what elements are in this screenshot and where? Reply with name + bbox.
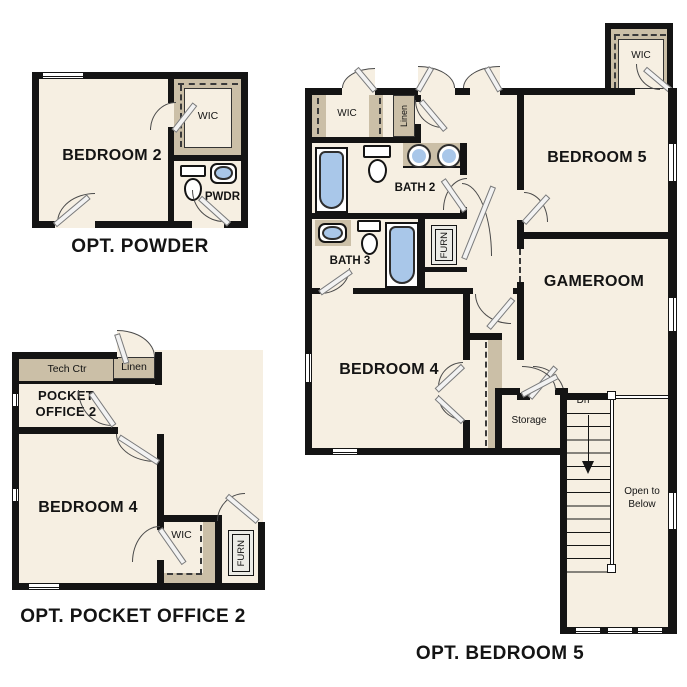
wall xyxy=(463,294,470,360)
wall xyxy=(517,282,524,360)
floorplan-canvas: WIC PWDR BEDROOM 2 OPT. POWDER Tech Ctr … xyxy=(0,0,687,687)
wall xyxy=(157,560,164,590)
bathtub-icon xyxy=(319,151,344,209)
bedroom2-label: BEDROOM 2 xyxy=(47,146,177,166)
wall xyxy=(157,434,164,515)
wall xyxy=(668,88,677,143)
newel-post xyxy=(607,391,616,400)
window xyxy=(42,72,84,79)
wall xyxy=(305,448,332,455)
wall-thin xyxy=(19,381,115,384)
window xyxy=(305,353,312,383)
newel-post xyxy=(607,564,616,573)
window xyxy=(607,627,633,634)
gameroom-label: GAMEROOM xyxy=(525,272,663,292)
wall xyxy=(12,352,19,590)
dashed-opening xyxy=(519,249,521,282)
wall xyxy=(157,515,222,522)
wall xyxy=(305,383,312,455)
plan-opt-powder: WIC PWDR BEDROOM 2 xyxy=(32,72,248,228)
wall xyxy=(353,288,473,294)
sink-bowl-icon xyxy=(409,146,429,166)
wall xyxy=(560,388,567,627)
wall xyxy=(418,219,425,288)
wall xyxy=(215,515,222,590)
railing xyxy=(610,400,614,568)
bathtub-icon xyxy=(389,226,415,284)
linen-label: Linen xyxy=(399,105,409,127)
furn-label: FURN xyxy=(236,540,247,566)
closet-rod-dashed-line xyxy=(614,34,616,88)
bedroom4-label: BEDROOM 4 xyxy=(24,498,152,518)
toilet-icon xyxy=(363,145,391,158)
furn-label: FURN xyxy=(439,232,450,258)
closet-rod-dashed-line xyxy=(485,342,487,446)
wall xyxy=(375,88,418,95)
wall xyxy=(113,379,162,384)
caption-opt-pocket-office-2: OPT. POCKET OFFICE 2 xyxy=(13,606,253,628)
window xyxy=(668,297,677,332)
wall xyxy=(495,388,520,395)
wall xyxy=(668,182,677,297)
window xyxy=(637,627,663,634)
wall xyxy=(415,124,421,137)
sink-bowl-icon xyxy=(439,146,459,166)
bath3-label: BATH 3 xyxy=(317,254,383,268)
wall xyxy=(425,267,467,272)
caption-opt-bedroom-5: OPT. BEDROOM 5 xyxy=(385,643,615,665)
wall xyxy=(460,143,467,175)
closet-rod-dashed-line xyxy=(178,83,238,85)
wall xyxy=(517,95,524,190)
toilet-icon xyxy=(357,220,381,232)
bedroom4-label: BEDROOM 4 xyxy=(323,360,455,380)
linen-label: Linen xyxy=(113,361,155,374)
window xyxy=(28,583,60,590)
wall xyxy=(668,332,677,492)
dn-label: Dn xyxy=(569,395,597,408)
wall xyxy=(470,333,502,340)
window xyxy=(332,448,358,455)
window xyxy=(12,488,19,502)
window xyxy=(12,393,19,407)
wic-top-label: WIC xyxy=(618,50,664,63)
furnace-icon: FURN xyxy=(431,225,457,265)
plan-opt-bedroom-5: WIC WIC Linen xyxy=(305,20,677,634)
down-arrow-icon xyxy=(582,461,594,474)
caption-opt-powder: OPT. POWDER xyxy=(32,236,248,258)
door-opening xyxy=(635,89,668,95)
bedroom5-label: BEDROOM 5 xyxy=(533,148,661,168)
railing xyxy=(612,395,668,399)
down-arrow-icon xyxy=(588,415,589,462)
tech-ctr-label: Tech Ctr xyxy=(19,363,115,376)
storage-label: Storage xyxy=(500,415,558,428)
wall xyxy=(168,79,174,103)
wall xyxy=(258,522,265,590)
wall xyxy=(463,420,470,448)
wall xyxy=(305,88,312,353)
wall xyxy=(500,88,640,95)
linen-closet: Linen xyxy=(393,95,415,137)
window xyxy=(668,492,677,530)
wic-hall-label: WIC xyxy=(319,108,375,121)
open-to-below-label: Open to Below xyxy=(619,486,665,511)
wall xyxy=(517,239,524,249)
wall xyxy=(305,213,467,219)
furnace-icon: FURN xyxy=(228,530,254,576)
wall xyxy=(517,232,668,239)
door-opening xyxy=(192,221,224,228)
wall xyxy=(358,448,560,455)
wall xyxy=(455,88,470,95)
bath2-label: BATH 2 xyxy=(385,181,445,195)
closet-rod-dashed-line xyxy=(167,573,202,575)
sink-bowl-icon xyxy=(214,166,233,180)
window xyxy=(575,627,601,634)
window xyxy=(668,143,677,182)
wall xyxy=(168,155,241,161)
closet-rod-dashed-line xyxy=(614,34,666,36)
wall xyxy=(668,530,677,634)
wall xyxy=(513,288,517,294)
wall xyxy=(12,352,118,359)
toilet-icon xyxy=(180,165,206,177)
plan-opt-pocket-office-2: Tech Ctr Linen POCKET OFFICE 2 BEDROOM 4 xyxy=(12,330,265,592)
sink-bowl-icon xyxy=(322,226,343,240)
closet-rod-dashed-line xyxy=(379,98,381,134)
wall xyxy=(12,427,118,434)
